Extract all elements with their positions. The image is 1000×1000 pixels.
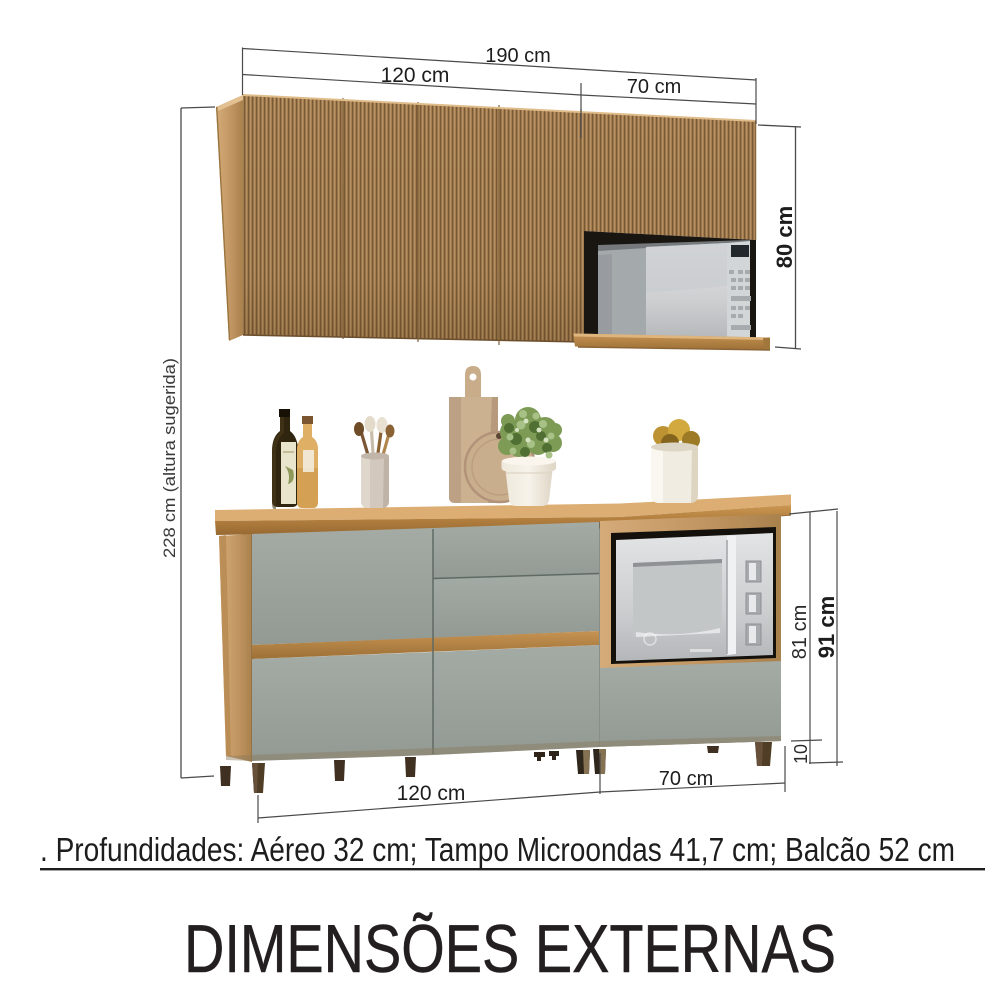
svg-text:81 cm: 81 cm	[789, 605, 811, 659]
svg-text:10: 10	[791, 744, 811, 764]
svg-text:DIMENSÕES EXTERNAS: DIMENSÕES EXTERNAS	[184, 911, 836, 987]
svg-text:80 cm: 80 cm	[772, 206, 797, 268]
svg-text:91 cm: 91 cm	[814, 596, 839, 658]
svg-text:228 cm (altura sugerida): 228 cm (altura sugerida)	[161, 358, 179, 558]
svg-text:. Profundidades: Aéreo 32 cm;: . Profundidades: Aéreo 32 cm; Tampo Micr…	[40, 831, 955, 868]
svg-text:190 cm: 190 cm	[485, 45, 551, 67]
svg-text:120 cm: 120 cm	[381, 64, 450, 87]
svg-text:120 cm: 120 cm	[397, 782, 466, 805]
svg-text:70 cm: 70 cm	[627, 76, 681, 98]
svg-text:70 cm: 70 cm	[659, 768, 713, 790]
